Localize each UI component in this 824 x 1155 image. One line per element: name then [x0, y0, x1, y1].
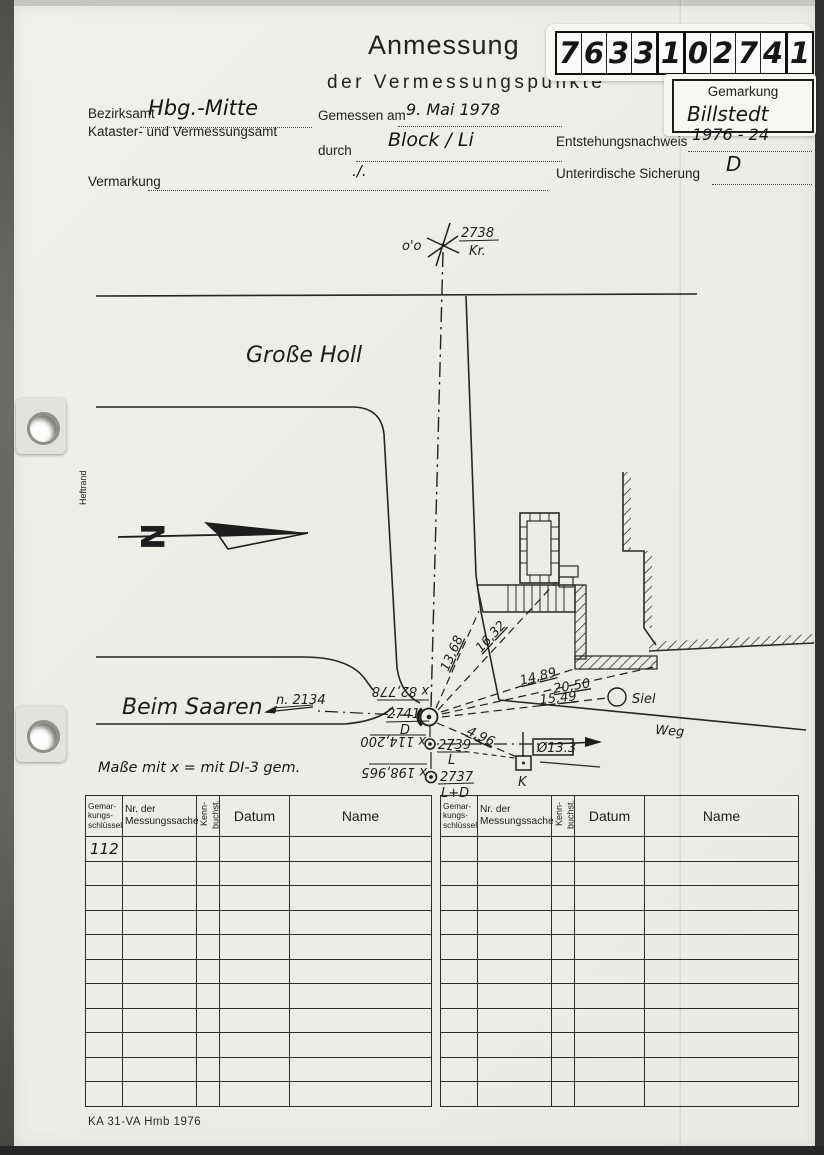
measurement-label: 16,32	[473, 618, 509, 655]
record-table-left: Gemar- kungs- schlüssel Nr. der Messungs…	[85, 795, 432, 1107]
point-2738: o'o 2738 Kr.	[402, 223, 499, 266]
table-row	[441, 910, 799, 935]
table-row	[86, 959, 432, 984]
col-name: Name	[645, 796, 799, 837]
gemarkung-key-cell: 112	[86, 837, 123, 862]
heftrand-label: Heftrand	[78, 470, 88, 505]
col-name: Name	[290, 796, 432, 837]
form-code: KA 31-VA Hmb 1976	[88, 1116, 201, 1128]
table-row	[441, 861, 799, 886]
street-label-grosse-holl: Große Holl	[246, 343, 362, 368]
point-2739-sub: L	[448, 753, 455, 768]
k-label: K	[518, 775, 528, 790]
street-label-weg: Weg	[655, 723, 685, 740]
table-row	[441, 886, 799, 911]
record-table-right: Gemar- kungs- schlüssel Nr. der Messungs…	[440, 795, 799, 1107]
table-row	[86, 886, 432, 911]
col-kennbuchst: Kenn- buchst.	[197, 796, 220, 837]
table-row	[86, 1008, 432, 1033]
table-row	[441, 1057, 799, 1082]
table-row	[86, 1057, 432, 1082]
table-row	[86, 861, 432, 886]
table-row	[441, 959, 799, 984]
table-row	[441, 1082, 799, 1107]
scanned-survey-form: Anmessung der Vermessungspunkte 7 6 3 3 …	[0, 0, 824, 1155]
traverse-line	[430, 252, 443, 769]
oo-mark: o'o	[402, 239, 422, 254]
col-datum: Datum	[220, 796, 290, 837]
point-2738-id: 2738	[461, 226, 494, 241]
siel-label: Siel	[632, 692, 656, 707]
k-box-value: Ø13.3	[536, 741, 576, 756]
table-row	[86, 984, 432, 1009]
siel-manhole: Siel	[608, 688, 656, 707]
point-2741-station: x 82,778	[372, 683, 430, 698]
point-2739-id: 2739	[438, 738, 471, 753]
building-structure	[477, 472, 814, 669]
table-row	[441, 837, 799, 862]
col-kennbuchst: Kenn- buchst.	[552, 796, 575, 837]
table-row	[441, 935, 799, 960]
table-row	[86, 1082, 432, 1107]
measurement-label: 13,68	[438, 634, 467, 674]
table-row	[86, 910, 432, 935]
col-gemarkungsschluessel: Gemar- kungs- schlüssel	[441, 796, 478, 837]
col-messungssache: Nr. der Messungssache	[123, 796, 197, 837]
col-messungssache: Nr. der Messungssache	[478, 796, 552, 837]
table-row: 112	[86, 837, 432, 862]
table-row	[441, 1033, 799, 1058]
table-row	[86, 1033, 432, 1058]
table-row	[86, 935, 432, 960]
point-2738-sub: Kr.	[469, 244, 486, 259]
point-2737-station: x 198,965	[361, 764, 428, 779]
north-arrow: N	[118, 522, 308, 550]
point-2741: 2741 D x 82,778	[372, 683, 438, 738]
point-2741-id: 2741	[387, 707, 420, 722]
table-row	[441, 1008, 799, 1033]
col-datum: Datum	[575, 796, 645, 837]
col-gemarkungsschluessel: Gemar- kungs- schlüssel	[86, 796, 123, 837]
street-label-beim-saaren: Beim Saaren	[122, 695, 263, 720]
table-row	[441, 984, 799, 1009]
measure-note: Maße mit x = mit DI-3 gem.	[98, 760, 300, 776]
north-label: N	[133, 523, 171, 550]
point-2739: 2739 L x 114,200	[360, 733, 471, 768]
measurement-label: 15,49	[539, 689, 578, 708]
